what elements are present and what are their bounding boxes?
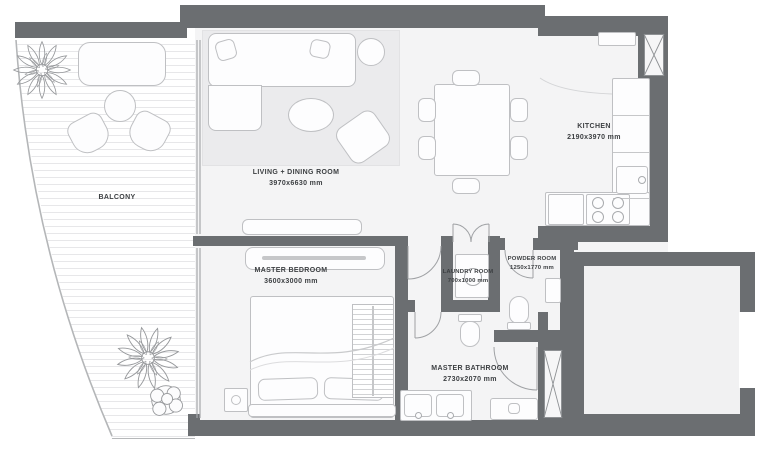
- room-label-master-bedroom: MASTER BEDROOM 3600x3000 mm: [211, 266, 371, 287]
- room-dims: 2190x3970 mm: [534, 133, 654, 144]
- stove-burner: [592, 211, 604, 223]
- sideboard: [242, 219, 362, 235]
- wall: [395, 300, 415, 312]
- room-label-living-dining: LIVING + DINING ROOM 3970x6630 mm: [216, 168, 376, 189]
- wall: [441, 300, 500, 312]
- headboard: [248, 404, 396, 417]
- dining-chair: [418, 136, 436, 160]
- room-label-balcony: BALCONY: [57, 193, 177, 204]
- wall: [193, 236, 408, 246]
- outdoor-table: [104, 90, 136, 122]
- toilet: [509, 296, 529, 324]
- room-dims: 3600x3000 mm: [211, 277, 371, 288]
- dining-table: [434, 84, 510, 176]
- room-name: MASTER BEDROOM: [211, 266, 371, 277]
- room-label-master-bathroom: MASTER BATHROOM 2730x2070 mm: [390, 364, 550, 385]
- dining-chair: [452, 178, 480, 194]
- room-dims: 3970x6630 mm: [216, 179, 376, 190]
- sink-faucet: [638, 176, 646, 184]
- dining-chair: [452, 70, 480, 86]
- room-name: LIVING + DINING ROOM: [216, 168, 376, 179]
- cabinet-divider: [613, 115, 649, 116]
- room-dims: 2730x2070 mm: [390, 375, 550, 386]
- outdoor-sofa: [78, 42, 166, 86]
- dining-chair: [418, 98, 436, 122]
- stove-burner: [612, 211, 624, 223]
- sink-faucet: [415, 412, 422, 419]
- wall: [180, 5, 545, 28]
- coffee-table: [288, 98, 334, 132]
- room-name: POWDER ROOM: [482, 255, 582, 264]
- wall: [496, 238, 505, 250]
- fridge: [548, 194, 584, 225]
- room-label-powder: POWDER ROOM 1250x1770 mm: [482, 255, 582, 273]
- tv: [262, 256, 366, 260]
- kitchen-wall-cabinet: [598, 32, 636, 46]
- room-dims: 700x1000 mm: [418, 277, 518, 286]
- stair-block-core: [584, 266, 740, 414]
- room-name: KITCHEN: [534, 122, 654, 133]
- room-name: BALCONY: [57, 193, 177, 204]
- dining-chair: [510, 98, 528, 122]
- wall: [538, 312, 548, 344]
- duct-shaft: [644, 34, 664, 76]
- cabinet-divider: [613, 152, 649, 153]
- wall: [15, 22, 187, 38]
- sofa-chaise: [208, 85, 262, 131]
- sink-faucet: [447, 412, 454, 419]
- nightstand-lamp: [231, 395, 241, 405]
- wardrobe-rail: [372, 306, 374, 396]
- stove-burner: [592, 197, 604, 209]
- tub-faucet: [508, 403, 520, 414]
- toilet: [460, 321, 480, 347]
- bed-pillow: [258, 377, 319, 401]
- stair-block-opening: [739, 312, 755, 388]
- stove-burner: [612, 197, 624, 209]
- dining-chair: [510, 136, 528, 160]
- floorplan: BALCONY LIVING + DINING ROOM 3970x6630 m…: [0, 0, 768, 452]
- side-table: [357, 38, 385, 66]
- wall: [188, 414, 200, 436]
- washbasin: [545, 278, 561, 303]
- wall: [193, 236, 203, 246]
- toilet-tank: [507, 322, 531, 330]
- room-label-kitchen: KITCHEN 2190x3970 mm: [534, 122, 654, 143]
- room-dims: 1250x1770 mm: [482, 264, 582, 273]
- room-name: MASTER BATHROOM: [390, 364, 550, 375]
